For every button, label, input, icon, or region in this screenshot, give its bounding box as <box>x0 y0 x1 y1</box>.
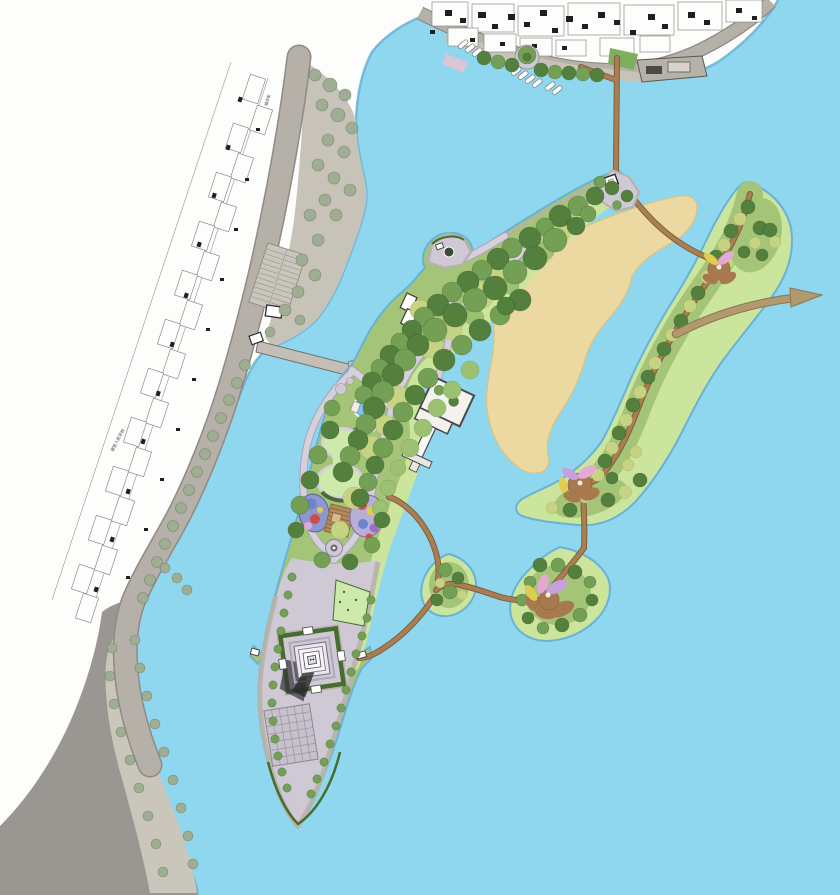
grid-grove-plaza <box>264 704 318 767</box>
bastion-pavilion <box>444 247 454 257</box>
masterplan-svg: 谢家人民学校 福泽街 <box>0 0 840 895</box>
masterplan-map: 谢家人民学校 福泽街 <box>0 0 840 895</box>
